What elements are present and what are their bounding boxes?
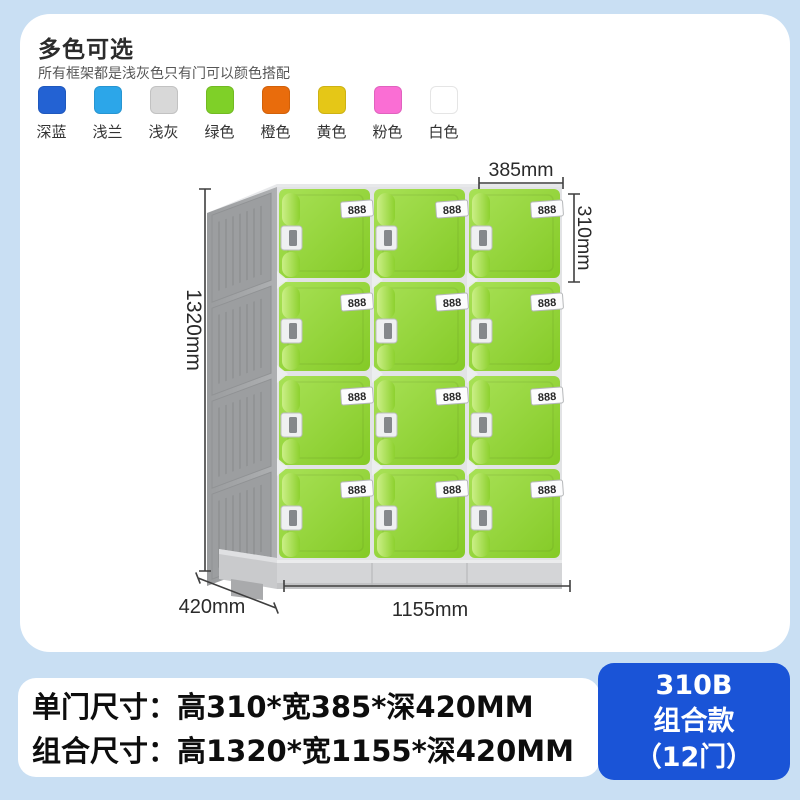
- locker-door: [374, 376, 469, 465]
- badge-model: 310B: [656, 668, 733, 704]
- locker-door: [374, 282, 469, 371]
- badge-series: 组合款: [654, 704, 735, 740]
- product-infographic: 多色可选 所有框架都是浅灰色只有门可以颜色搭配 深蓝 浅兰 浅灰 绿色 橙色 黄…: [0, 0, 800, 800]
- locker-door: [374, 469, 469, 558]
- locker-door: [374, 189, 469, 278]
- dimension-depth: 420mm: [179, 596, 246, 618]
- locker-door: [279, 282, 374, 371]
- model-badge: 310B 组合款 （12门）: [598, 663, 790, 780]
- locker-door: [469, 376, 564, 465]
- locker-door: [469, 189, 564, 278]
- locker-door: [469, 282, 564, 371]
- locker-door: [469, 469, 564, 558]
- locker-side-panel: [207, 187, 277, 586]
- dimension-total-height: 1320mm: [182, 289, 205, 371]
- locker-door: [279, 376, 374, 465]
- spec-combined: 组合尺寸：高1320*宽1155*深420MM: [32, 729, 600, 773]
- dimension-total-width: 1155mm: [392, 599, 468, 621]
- locker-door: [279, 469, 374, 558]
- locker-door: [279, 189, 374, 278]
- spec-box: 单门尺寸：高310*宽385*深420MM 组合尺寸：高1320*宽1155*深…: [18, 678, 600, 777]
- spec-single-door: 单门尺寸：高310*宽385*深420MM: [32, 685, 600, 729]
- badge-door-count: （12门）: [635, 740, 754, 776]
- dimension-door-width: 385mm: [488, 159, 553, 181]
- dimension-door-height: 310mm: [573, 205, 595, 270]
